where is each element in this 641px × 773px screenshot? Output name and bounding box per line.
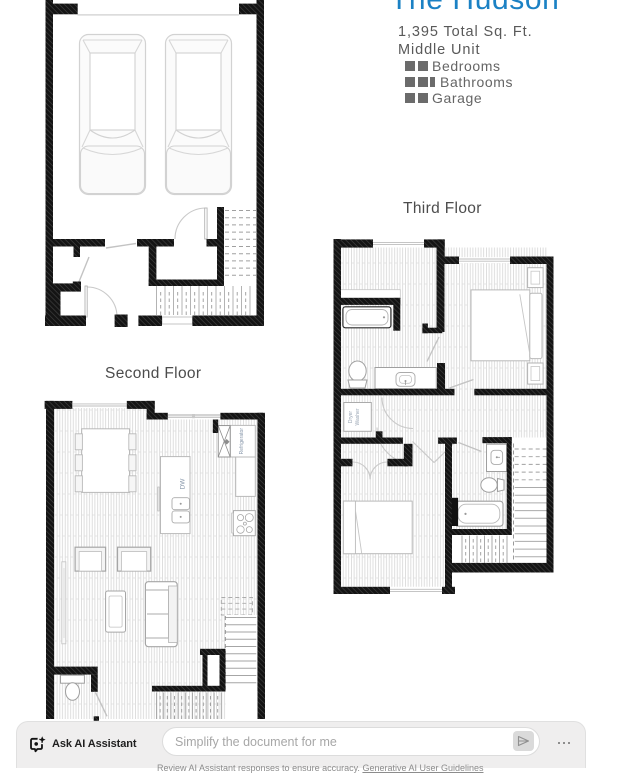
- svg-text:Dryer: Dryer: [348, 411, 354, 424]
- svg-text:DW: DW: [180, 478, 187, 490]
- svg-text:Refrigerator: Refrigerator: [239, 428, 245, 455]
- svg-text:Washer: Washer: [355, 408, 361, 425]
